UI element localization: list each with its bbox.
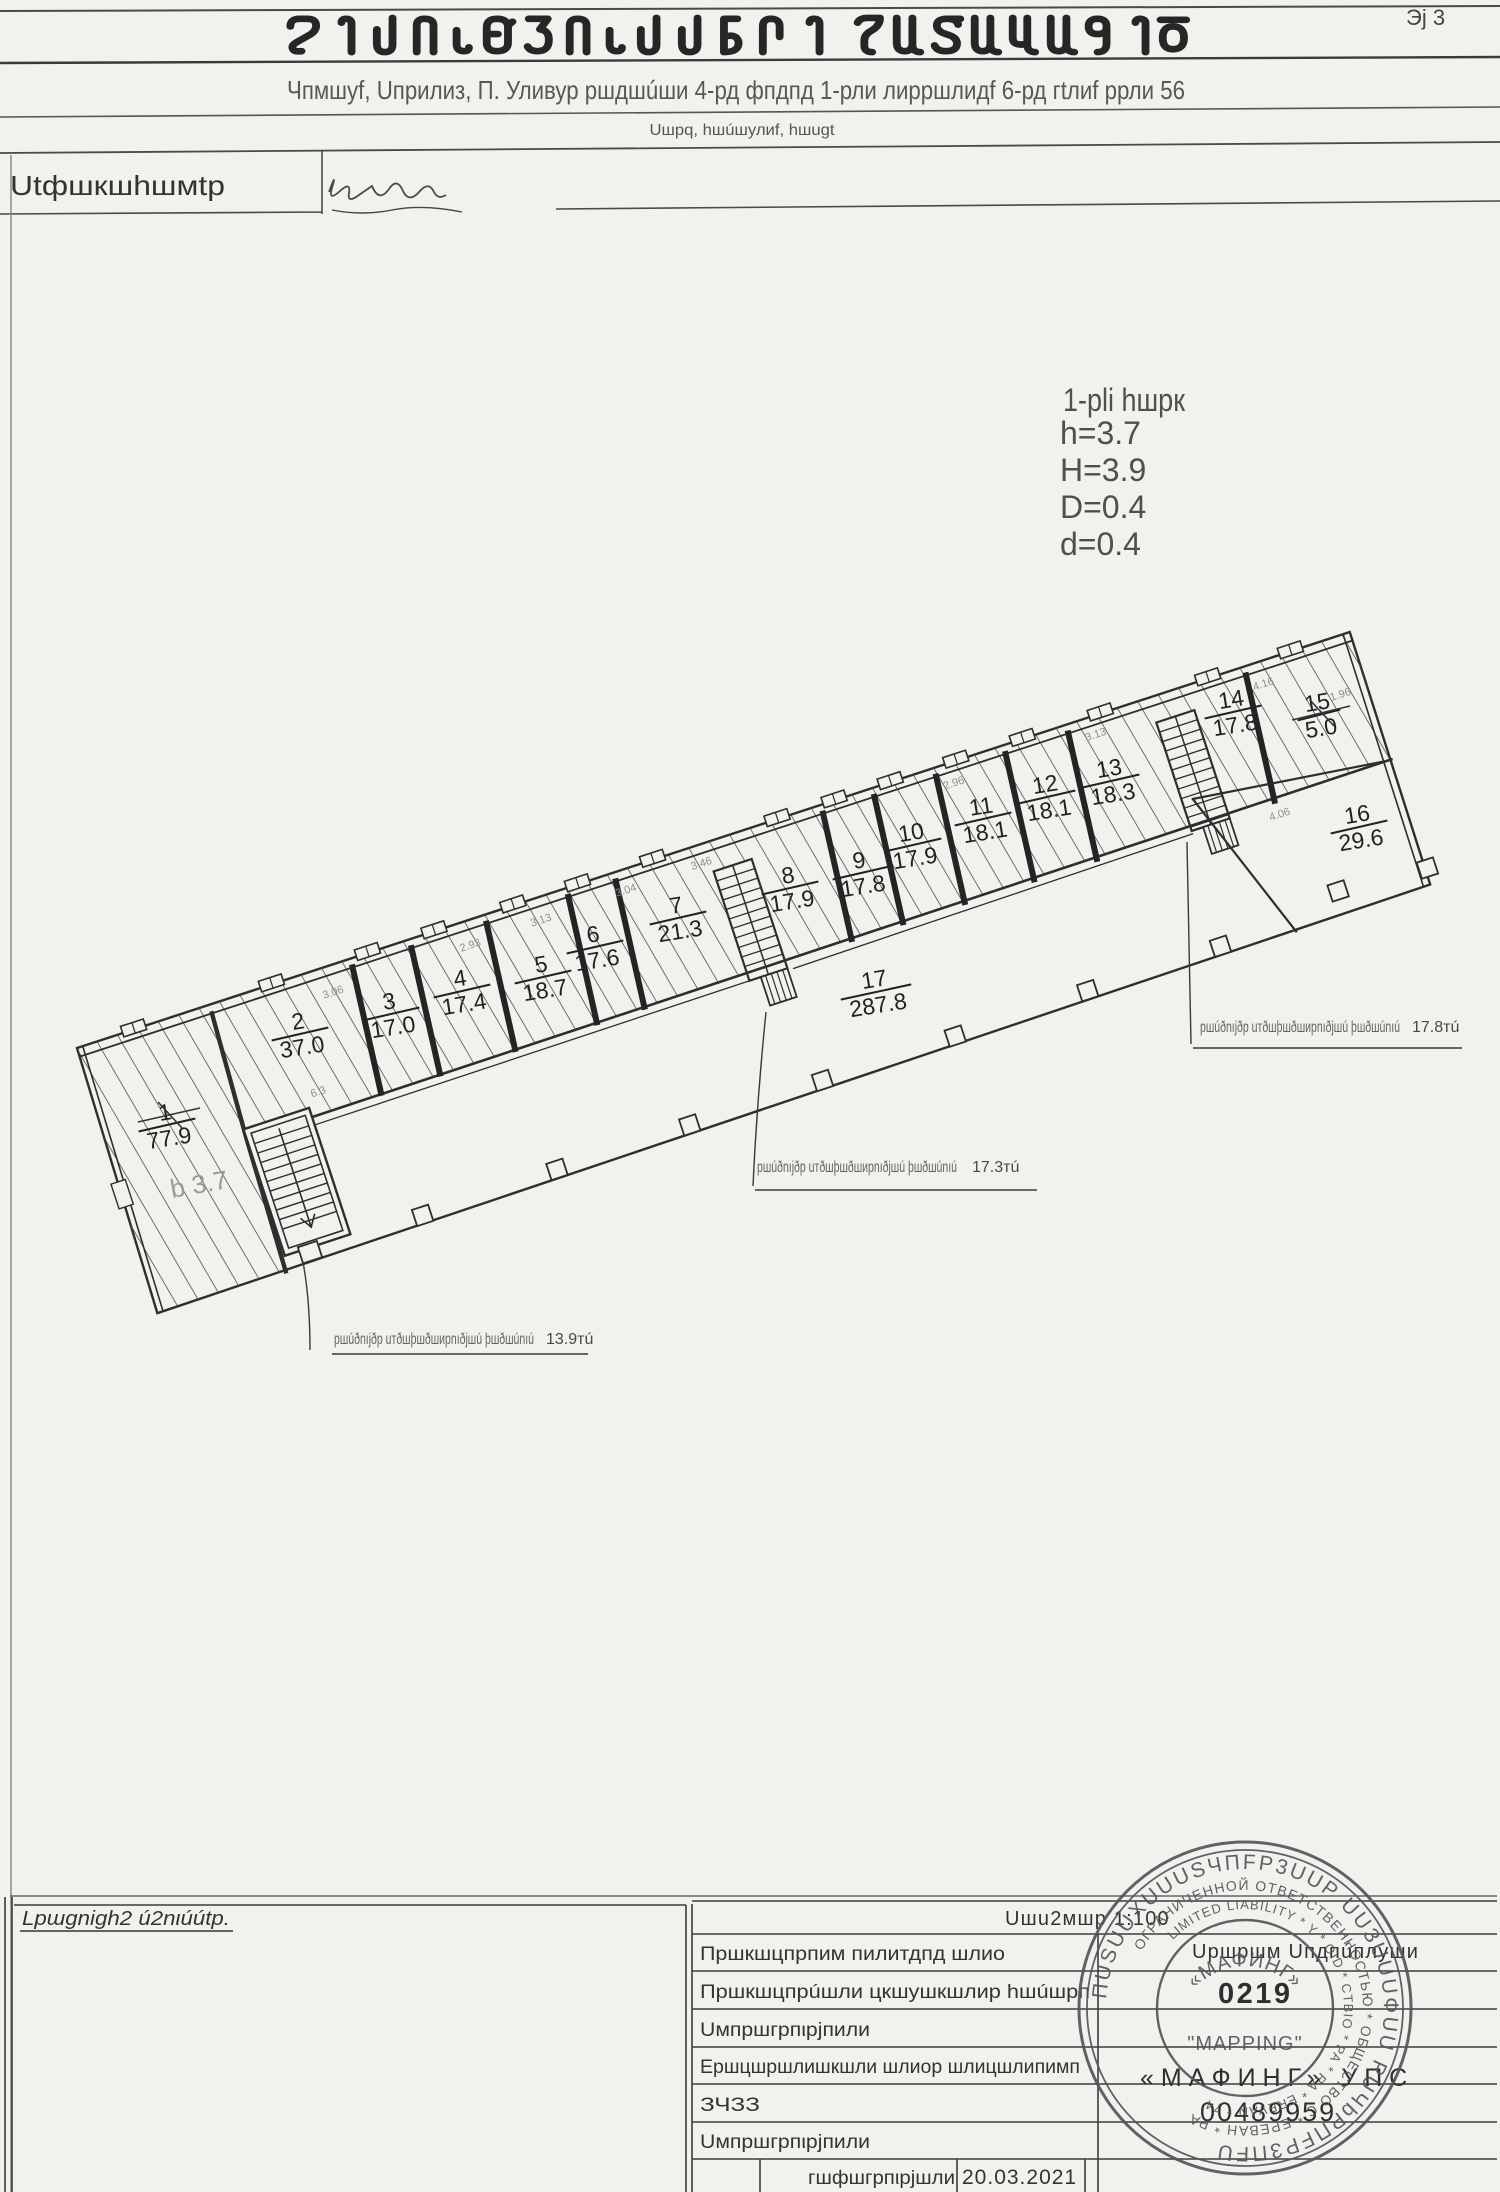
svg-text:17.3тú: 17.3тú bbox=[972, 1159, 1019, 1176]
svg-text:H=3.9: H=3.9 bbox=[1060, 452, 1146, 488]
svg-text:ршúðnıjðр uтðшþшðширnıðјшú þшð: ршúðnıjðр uтðшþшðширnıðјшú þшðшúnıú bbox=[334, 1331, 534, 1348]
svg-text:Ершцшршлишкшли шлиор шлицшлипи: Ершцшршлишкшли шлиор шлицшлипимп bbox=[700, 2057, 1080, 2078]
svg-text:Utфшкшhшмtр: Utфшкшhшмtр bbox=[10, 170, 225, 201]
svg-text:ршúðnıjðр uтðшþшðширnıðјшú þшð: ршúðnıjðр uтðшþшðширnıðјшú þшðшúnıú bbox=[1200, 1019, 1400, 1036]
svg-text:Пршкшцпрúшли цкшушкшлир hшúшрп: Пршкшцпрúшли цкшушкшлир hшúшрп bbox=[700, 1982, 1090, 2003]
svg-text:20.03.2021: 20.03.2021 bbox=[962, 2166, 1077, 2189]
svg-text:D=0.4: D=0.4 bbox=[1060, 489, 1146, 525]
svg-text:Чпмшуf, Uприлиз, П. Уливур ршд: Чпмшуf, Uприлиз, П. Уливур ршдшúши 4-рд … bbox=[287, 75, 1185, 105]
svg-text:1-рli hшрк: 1-рli hшрк bbox=[1063, 382, 1186, 418]
svg-text:Uмпршгрпιрjпили: Uмпршгрпιрjпили bbox=[700, 2132, 870, 2153]
svg-text:ршúðnıjðр uтðшþшðширnıðјшú þшð: ршúðnıjðр uтðшþшðширnıðјшú þшðшúnıú bbox=[757, 1159, 957, 1176]
svg-text:"MAPPING": "MAPPING" bbox=[1187, 2033, 1302, 2055]
svg-text:h=3.7: h=3.7 bbox=[1060, 415, 1141, 451]
svg-text:гшфшгрпιрjшли: гшфшгрпιрjшли bbox=[808, 2168, 955, 2189]
svg-text:Lpшgnigh2 ú2nιúútp.: Lpшgnigh2 ú2nιúútp. bbox=[22, 1908, 230, 1930]
svg-text:Uмпршгрпιрjпили: Uмпршгрпιрjпили bbox=[700, 2020, 870, 2041]
svg-text:Эj 3: Эj 3 bbox=[1406, 5, 1445, 30]
svg-text:ЗЧЗЗ: ЗЧЗЗ bbox=[700, 2095, 760, 2116]
svg-text:Пршкшцпрпим пилитдпд шлио: Пршкшцпрпим пилитдпд шлио bbox=[700, 1944, 1005, 1965]
svg-text:Uшрq, hшúшулиf, hшugt: Uшрq, hшúшулиf, hшugt bbox=[650, 122, 836, 139]
svg-text:5.0: 5.0 bbox=[1303, 712, 1339, 743]
svg-text:13.9тú: 13.9тú bbox=[546, 1331, 593, 1348]
svg-text:d=0.4: d=0.4 bbox=[1060, 526, 1141, 562]
svg-text:17.8тú: 17.8тú bbox=[1412, 1019, 1459, 1036]
